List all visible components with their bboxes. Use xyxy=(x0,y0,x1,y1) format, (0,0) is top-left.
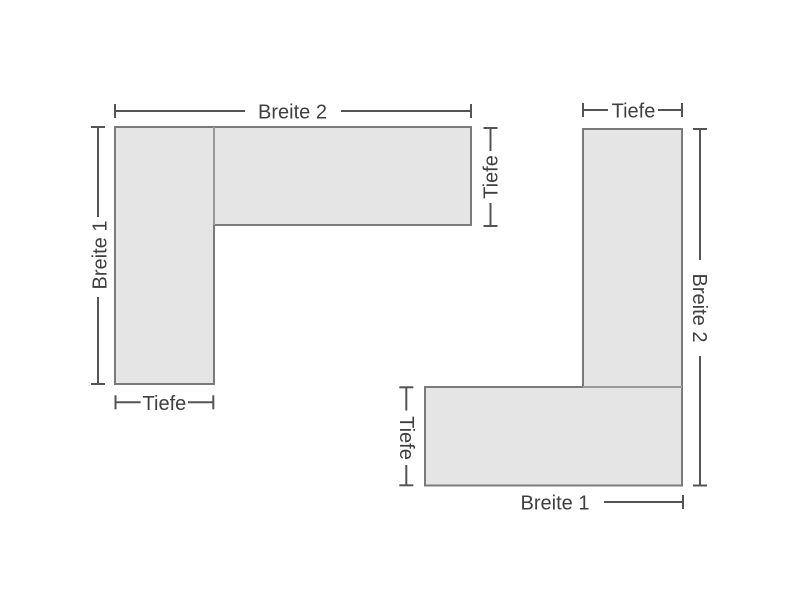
svg-text:Tiefe: Tiefe xyxy=(481,155,503,199)
svg-text:Breite 1: Breite 1 xyxy=(90,221,112,290)
svg-text:Breite 2: Breite 2 xyxy=(688,274,710,343)
svg-text:Breite 1: Breite 1 xyxy=(521,493,590,515)
svg-text:Tiefe: Tiefe xyxy=(143,393,187,415)
svg-text:Tiefe: Tiefe xyxy=(612,101,656,123)
svg-text:Tiefe: Tiefe xyxy=(395,416,417,460)
svg-text:Breite 2: Breite 2 xyxy=(258,102,327,124)
